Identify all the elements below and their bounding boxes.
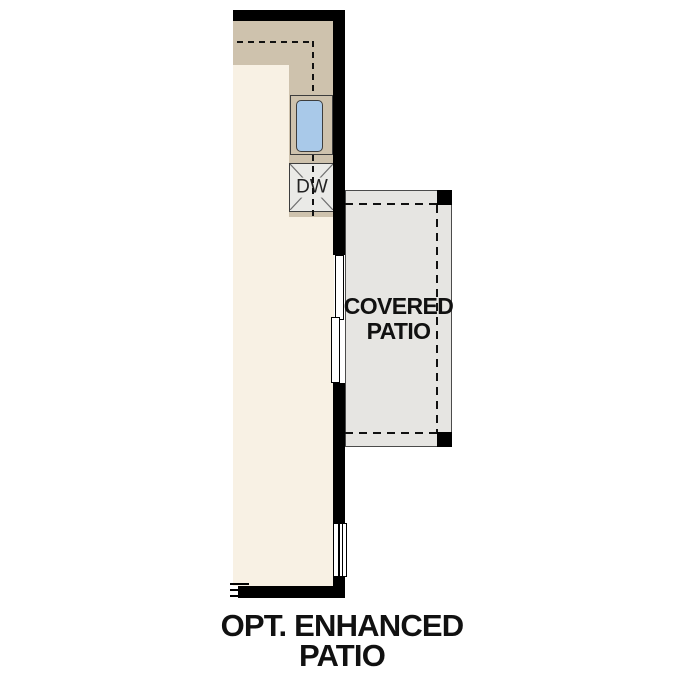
window-pane-line xyxy=(338,524,340,576)
patio-roof-dashed-line-bottom xyxy=(345,432,437,434)
bottom-wall xyxy=(238,586,345,598)
patio-post-bottom-icon xyxy=(437,432,452,447)
sliding-door-lower-panel xyxy=(331,317,340,383)
upper-cabinet-dashed-line-h xyxy=(237,41,313,43)
plan-caption-line2: PATIO xyxy=(142,641,542,671)
sink-basin-icon xyxy=(296,100,323,152)
wall-break-lines-icon xyxy=(230,583,249,585)
covered-patio-label-line1: COVERED xyxy=(343,294,454,319)
top-wall xyxy=(233,10,345,21)
upper-cabinet-dashed-line-v-lower xyxy=(312,155,314,217)
wall-break-lines-icon xyxy=(230,589,249,591)
window-icon xyxy=(333,523,347,577)
covered-patio-label-line2: PATIO xyxy=(343,319,454,344)
right-wall-upper xyxy=(333,10,345,255)
right-wall-middle xyxy=(333,383,345,523)
covered-patio-label: COVERED PATIO xyxy=(343,294,454,344)
window-pane-line xyxy=(342,524,344,576)
plan-caption-line1: OPT. ENHANCED xyxy=(142,611,542,641)
plan-caption: OPT. ENHANCED PATIO xyxy=(142,611,542,671)
sliding-door-upper-panel xyxy=(335,255,344,320)
upper-cabinet-dashed-line-v-upper xyxy=(312,41,314,95)
patio-post-top-icon xyxy=(437,190,452,205)
floor-plan: DW COVERED PATIO OPT. ENHANCED PATIO xyxy=(0,0,687,687)
patio-roof-dashed-line-top xyxy=(345,203,437,205)
wall-break-lines-icon xyxy=(230,595,249,597)
